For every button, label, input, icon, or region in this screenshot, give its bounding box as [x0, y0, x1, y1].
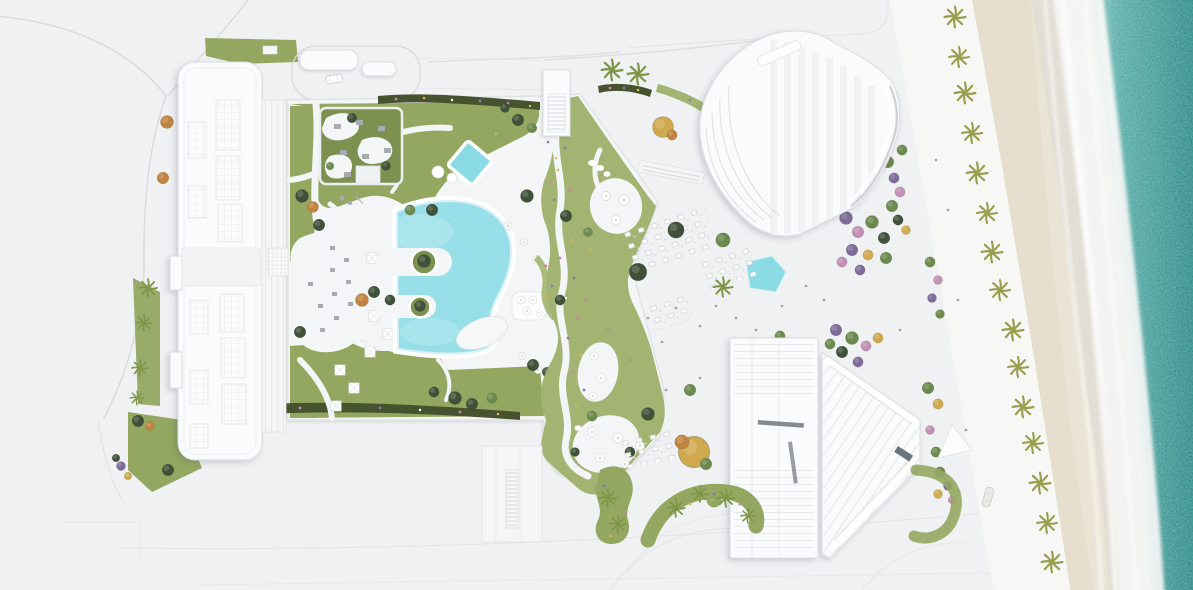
left-building [170, 62, 262, 460]
north-stair-core [543, 70, 570, 136]
roof-garden [320, 108, 402, 184]
car [325, 74, 343, 84]
louver-canopy [262, 100, 288, 432]
resort-aerial-render [0, 0, 1193, 590]
